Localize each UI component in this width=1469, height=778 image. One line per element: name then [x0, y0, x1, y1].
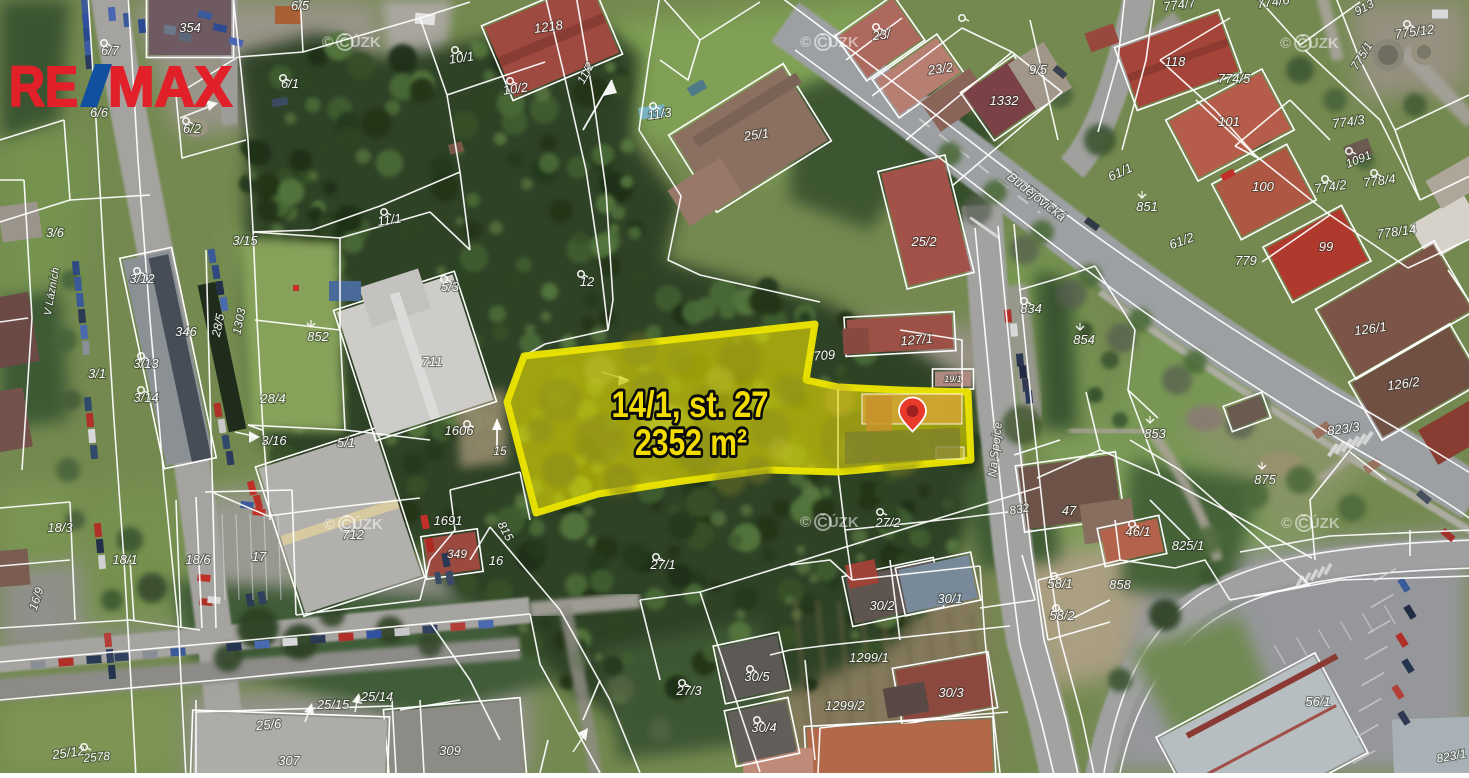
svg-text:15: 15 [493, 444, 507, 458]
svg-text:ČÚZK: ČÚZK [339, 33, 381, 51]
svg-text:25/6: 25/6 [254, 716, 282, 733]
svg-text:ČÚZK: ČÚZK [341, 515, 383, 533]
svg-text:99: 99 [1319, 239, 1333, 254]
svg-text:3/6: 3/6 [46, 225, 65, 240]
svg-text:1691: 1691 [434, 513, 463, 528]
svg-text:25/2: 25/2 [910, 234, 937, 249]
svg-text:3/1: 3/1 [88, 366, 106, 381]
svg-text:ČÚZK: ČÚZK [817, 33, 859, 51]
svg-text:18/3: 18/3 [47, 520, 73, 535]
svg-text:5/1: 5/1 [337, 435, 355, 450]
svg-text:16: 16 [489, 553, 504, 568]
svg-text:1299/1: 1299/1 [849, 650, 889, 665]
svg-text:9/5: 9/5 [1029, 62, 1048, 77]
svg-text:349: 349 [447, 547, 467, 561]
svg-text:©: © [1281, 515, 1292, 532]
svg-text:©: © [800, 34, 811, 51]
svg-text:19/1: 19/1 [944, 374, 962, 384]
svg-text:ČÚZK: ČÚZK [817, 513, 859, 531]
svg-text:100: 100 [1252, 179, 1274, 194]
svg-text:18/1: 18/1 [112, 552, 137, 567]
svg-text:3/16: 3/16 [261, 433, 287, 448]
svg-text:127/1: 127/1 [900, 331, 934, 349]
svg-text:RE: RE [9, 55, 78, 119]
svg-text:18/6: 18/6 [185, 552, 211, 567]
svg-text:118: 118 [1165, 54, 1186, 69]
svg-text:875: 875 [1254, 472, 1276, 487]
svg-text:3/15: 3/15 [232, 233, 258, 248]
svg-text:ČÚZK: ČÚZK [1298, 514, 1340, 532]
svg-text:852: 852 [307, 329, 329, 344]
svg-text:©: © [1280, 35, 1291, 52]
svg-text:25/15: 25/15 [316, 697, 350, 712]
svg-text:MAX: MAX [108, 55, 232, 119]
svg-text:307: 307 [278, 753, 300, 768]
svg-text:17: 17 [252, 549, 267, 564]
svg-text:©: © [322, 34, 333, 51]
svg-text:2352 m²: 2352 m² [635, 422, 747, 463]
svg-text:6/6: 6/6 [90, 105, 109, 120]
svg-text:27/2: 27/2 [874, 515, 901, 530]
svg-text:711: 711 [422, 354, 443, 369]
svg-text:30/3: 30/3 [938, 685, 964, 700]
svg-text:851: 851 [1136, 199, 1158, 214]
svg-text:1332: 1332 [990, 93, 1020, 108]
svg-text:30/2: 30/2 [869, 598, 895, 613]
svg-text:ČÚZK: ČÚZK [1297, 34, 1339, 52]
svg-text:346: 346 [175, 324, 197, 339]
svg-text:854: 854 [1073, 332, 1095, 347]
svg-text:354: 354 [179, 20, 201, 35]
svg-text:47: 47 [1062, 503, 1077, 518]
svg-text:30/1: 30/1 [937, 591, 962, 606]
svg-text:6/1: 6/1 [281, 76, 299, 91]
svg-text:14/1, st. 27: 14/1, st. 27 [612, 384, 769, 425]
svg-text:853: 853 [1144, 426, 1166, 441]
svg-text:309: 309 [439, 743, 461, 758]
svg-text:©: © [324, 516, 335, 533]
svg-text:1299/2: 1299/2 [825, 698, 866, 713]
svg-text:6/5: 6/5 [291, 0, 310, 13]
svg-text:774/5: 774/5 [1218, 71, 1251, 86]
svg-text:779: 779 [1235, 253, 1257, 268]
svg-text:101: 101 [1218, 114, 1240, 129]
svg-text:2578: 2578 [82, 749, 111, 765]
svg-text:25/14: 25/14 [360, 689, 394, 704]
svg-text:28/4: 28/4 [259, 391, 285, 406]
svg-text:56/1: 56/1 [1305, 694, 1330, 709]
svg-text:©: © [800, 514, 811, 531]
svg-text:825/1: 825/1 [1172, 538, 1205, 553]
svg-text:858: 858 [1109, 577, 1131, 592]
